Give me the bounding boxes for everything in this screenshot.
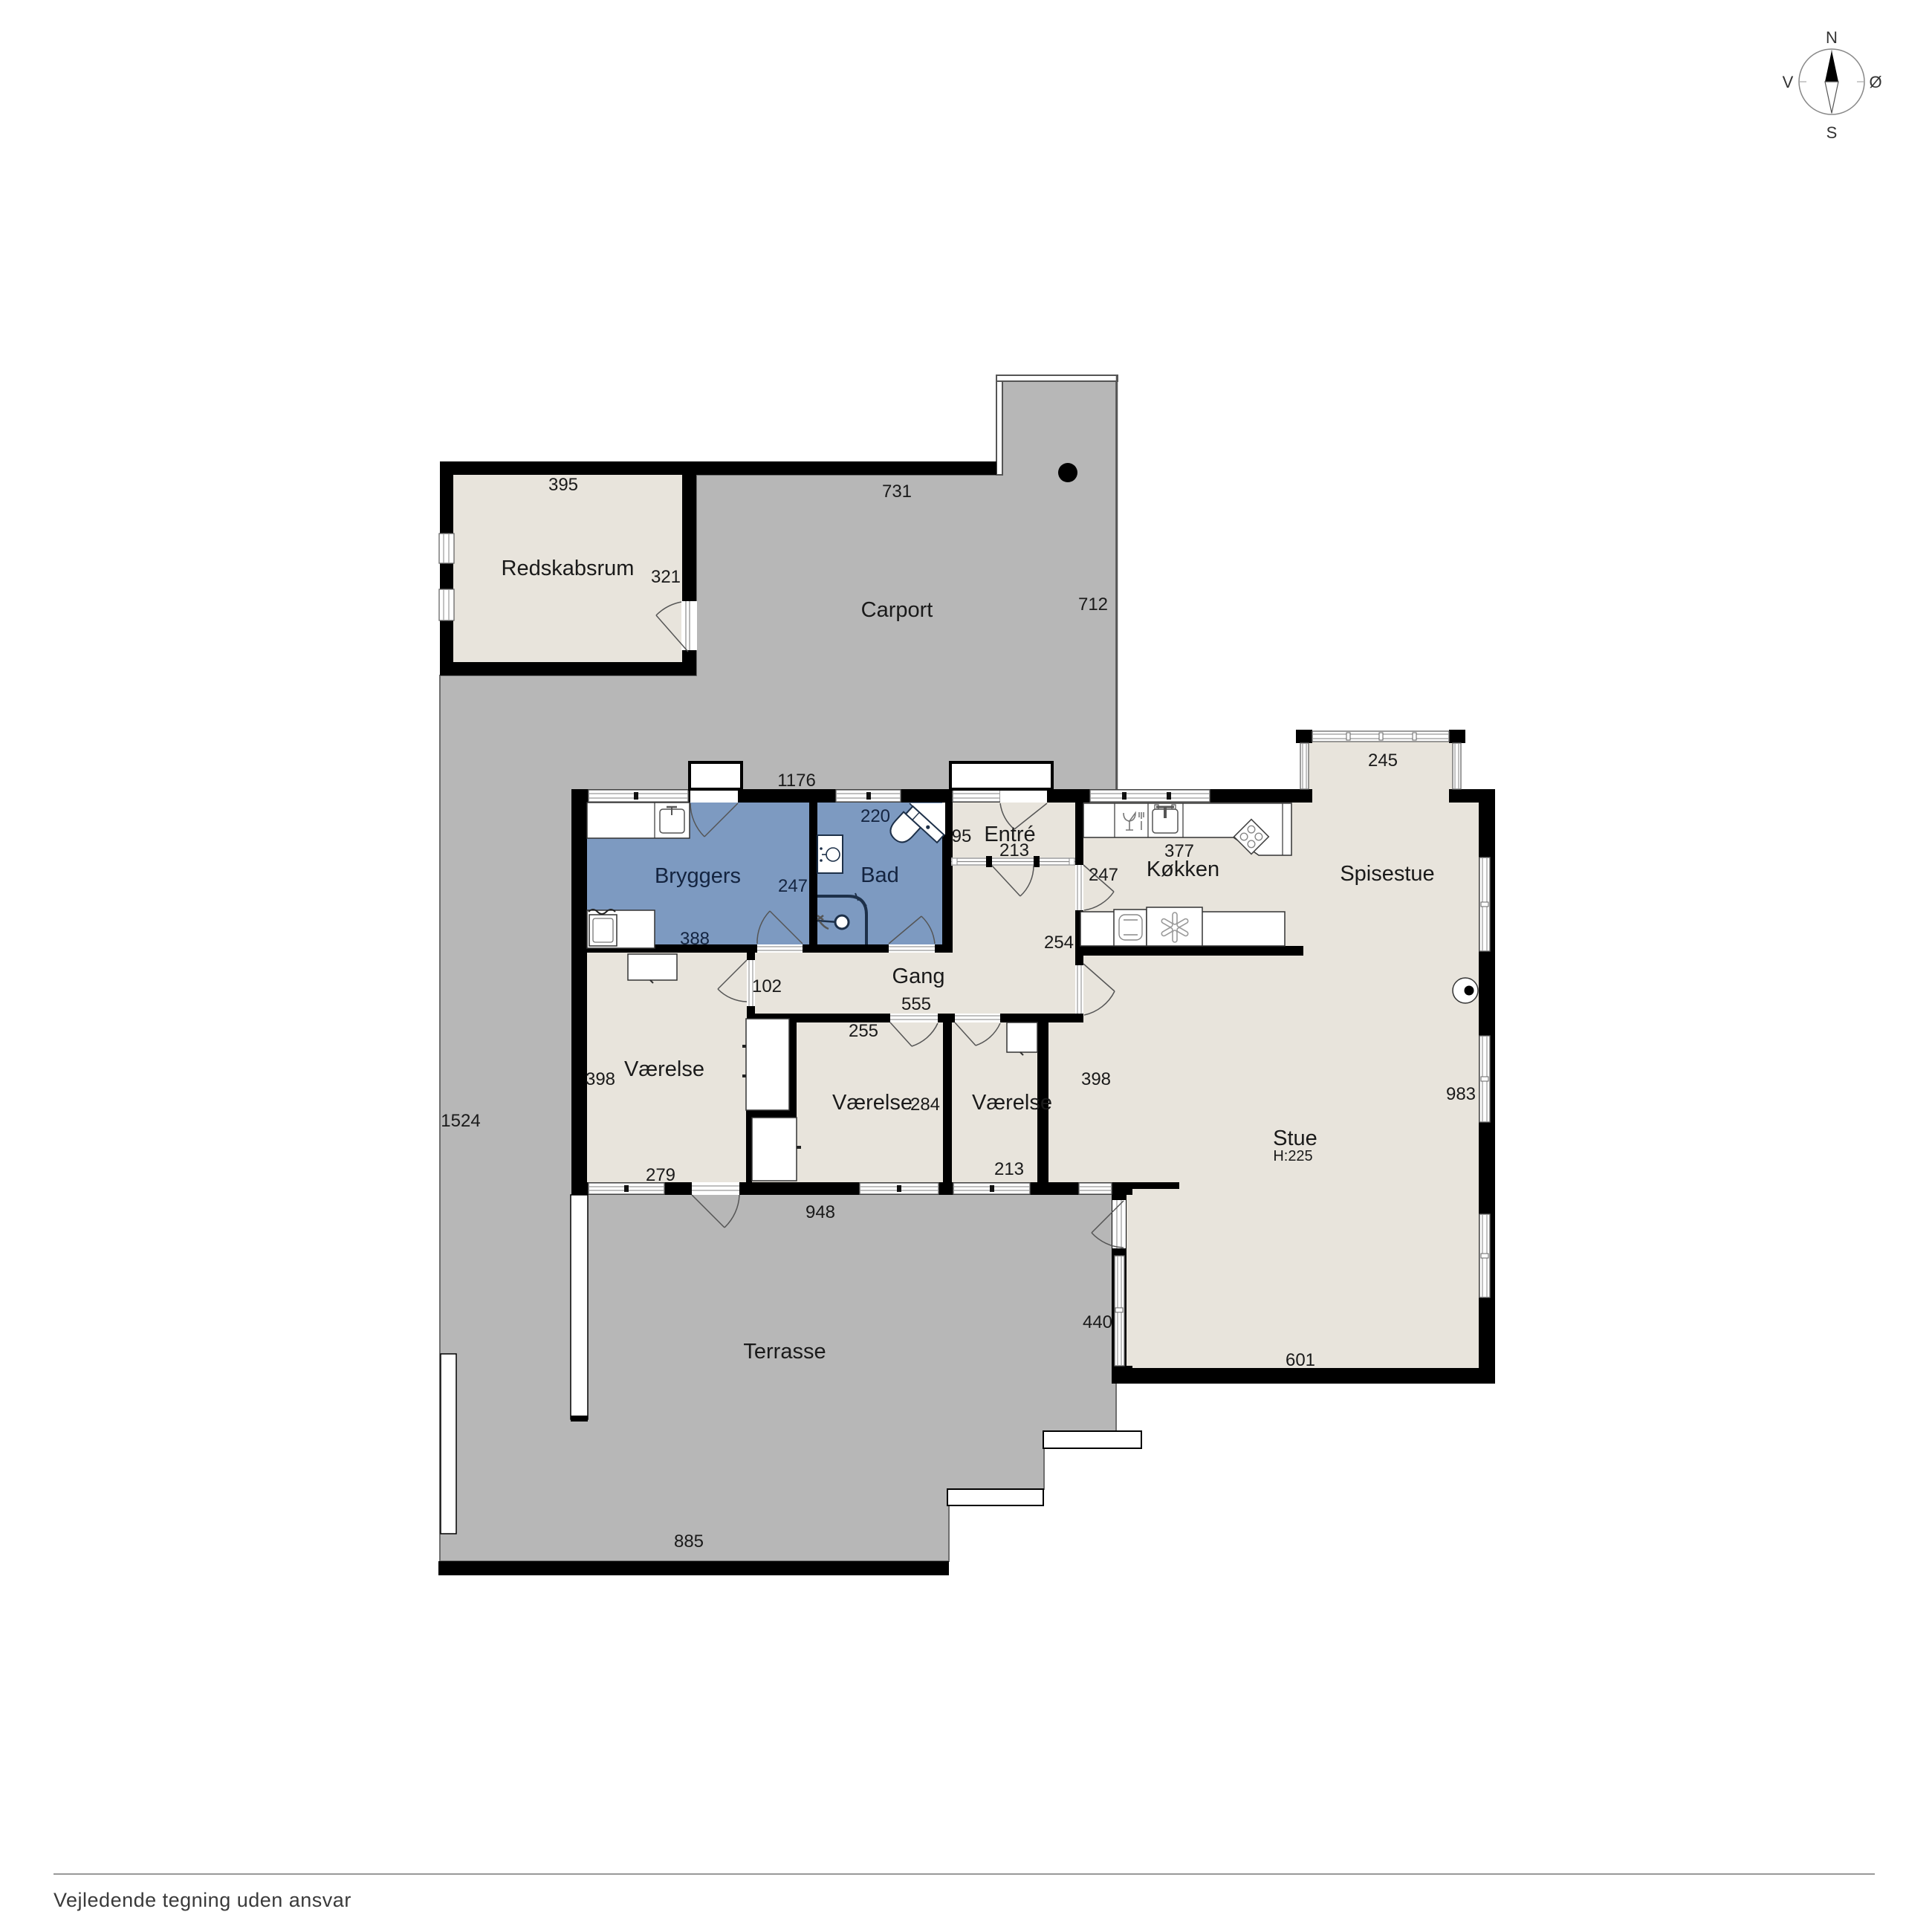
svg-text:948: 948 <box>805 1202 835 1222</box>
svg-text:213: 213 <box>999 840 1029 860</box>
svg-text:377: 377 <box>1164 841 1194 861</box>
svg-text:N: N <box>1826 28 1838 47</box>
svg-text:Værelse: Værelse <box>624 1057 704 1081</box>
svg-text:213: 213 <box>994 1159 1024 1179</box>
svg-text:V: V <box>1783 73 1794 91</box>
svg-text:247: 247 <box>1089 865 1118 885</box>
svg-text:440: 440 <box>1083 1312 1112 1332</box>
svg-text:Stue: Stue <box>1273 1127 1317 1150</box>
svg-text:Bad: Bad <box>860 863 899 887</box>
svg-text:245: 245 <box>1368 751 1398 771</box>
svg-text:555: 555 <box>901 994 931 1014</box>
svg-text:Vejledende tegning uden ansvar: Vejledende tegning uden ansvar <box>54 1889 351 1911</box>
svg-text:255: 255 <box>849 1021 878 1041</box>
svg-text:731: 731 <box>882 482 912 502</box>
svg-text:Værelse: Værelse <box>972 1091 1052 1115</box>
svg-text:601: 601 <box>1286 1350 1315 1370</box>
svg-text:279: 279 <box>646 1165 675 1185</box>
svg-text:Spisestue: Spisestue <box>1340 862 1434 886</box>
svg-text:247: 247 <box>778 876 808 896</box>
svg-text:284: 284 <box>910 1095 940 1115</box>
svg-text:398: 398 <box>1081 1069 1111 1089</box>
svg-text:S: S <box>1826 123 1838 142</box>
svg-text:102: 102 <box>752 976 782 996</box>
svg-text:254: 254 <box>1044 933 1074 953</box>
svg-text:H:225: H:225 <box>1273 1148 1312 1164</box>
svg-text:321: 321 <box>651 567 681 587</box>
svg-text:Ø: Ø <box>1869 73 1881 91</box>
svg-text:Gang: Gang <box>892 965 945 988</box>
svg-text:220: 220 <box>860 806 890 826</box>
svg-text:1176: 1176 <box>777 771 816 791</box>
svg-text:Terrasse: Terrasse <box>743 1340 826 1364</box>
svg-text:885: 885 <box>674 1531 704 1552</box>
svg-text:95: 95 <box>952 826 972 846</box>
svg-text:Redskabsrum: Redskabsrum <box>502 557 635 580</box>
svg-text:Værelse: Værelse <box>832 1091 912 1115</box>
svg-text:983: 983 <box>1446 1084 1476 1104</box>
svg-text:Bryggers: Bryggers <box>655 864 741 888</box>
svg-text:Carport: Carport <box>861 598 933 622</box>
svg-text:395: 395 <box>548 475 578 495</box>
svg-text:388: 388 <box>680 929 710 949</box>
svg-text:712: 712 <box>1078 594 1108 615</box>
svg-text:398: 398 <box>586 1069 615 1089</box>
svg-text:1524: 1524 <box>441 1111 480 1131</box>
